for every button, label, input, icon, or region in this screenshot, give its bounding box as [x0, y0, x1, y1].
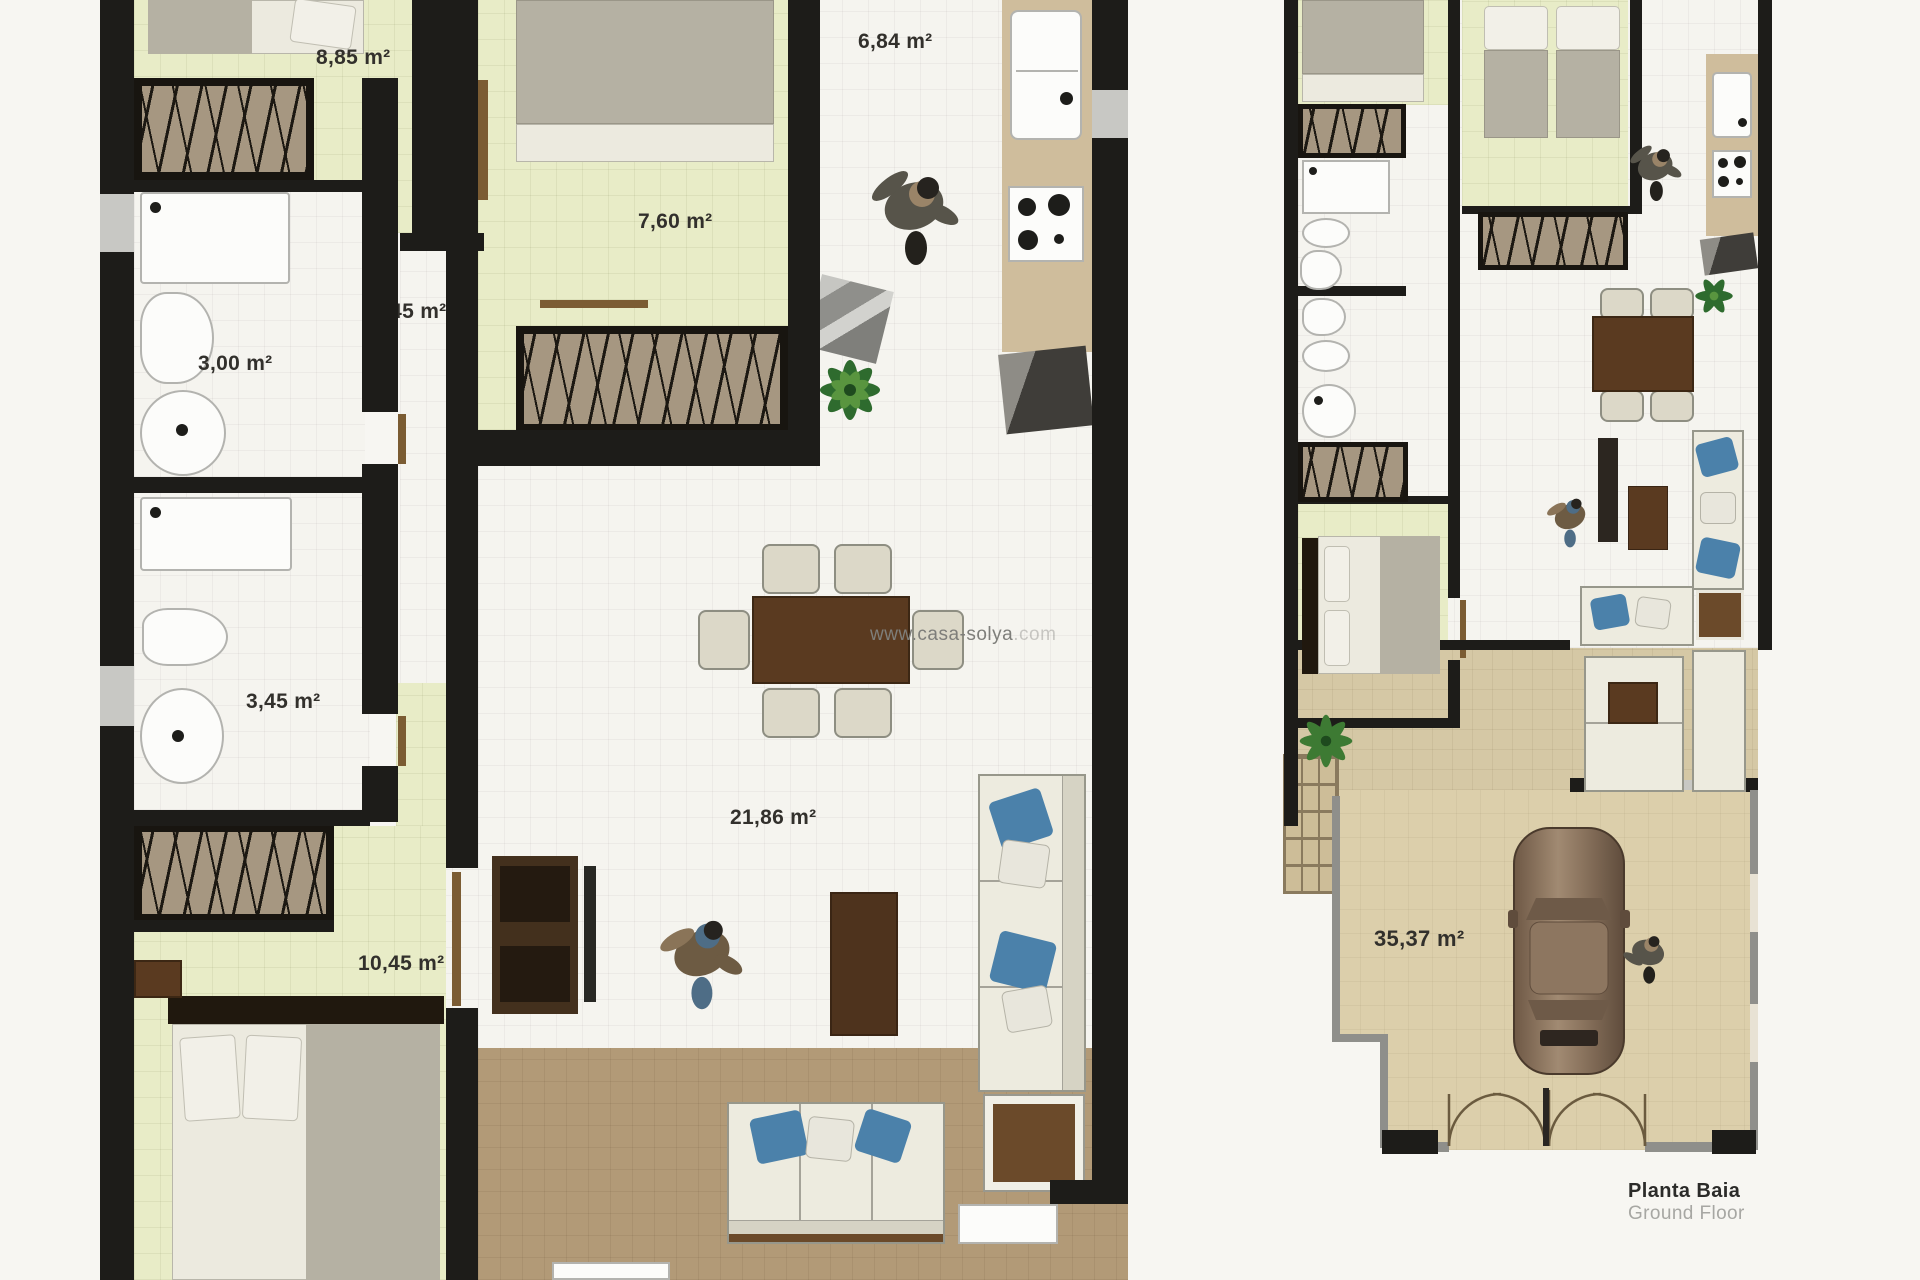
- drain-dot: [150, 202, 161, 213]
- armchair: [985, 1096, 1083, 1190]
- wardrobe-hangers: [1298, 104, 1406, 158]
- area-label-bathroom2: 3,45 m²: [246, 690, 320, 714]
- door-leaf: [398, 716, 406, 766]
- wall-living-left-upper: [446, 466, 478, 868]
- fridge-appliance: [998, 346, 1094, 435]
- tv-bench: [492, 856, 578, 1014]
- wall-outer-left: [100, 0, 134, 1280]
- door-leaf-bedroom1: [478, 80, 488, 200]
- drain-dot: [176, 424, 188, 436]
- wall-bedroom2-right: [788, 0, 820, 430]
- washbasin: [140, 390, 226, 476]
- watermark-visible: www.casa-solya: [870, 624, 1013, 645]
- stove-burners: [1008, 186, 1084, 262]
- dining-table: [1592, 316, 1694, 392]
- wardrobe-hangers: [516, 326, 788, 432]
- washbasin: [140, 688, 224, 784]
- garage-door-swings: [1447, 1086, 1647, 1148]
- garage-window: [1750, 874, 1758, 932]
- plan-caption: Planta Baia Ground Floor: [1628, 1180, 1745, 1225]
- floor-plan-sheet: 3,45 m²: [0, 0, 1920, 1280]
- drain-dot: [172, 730, 184, 742]
- person-figure: [1622, 132, 1686, 204]
- door-leaf-bedroom3: [452, 872, 461, 1006]
- washbasin: [1302, 340, 1350, 372]
- wall-divider-v: [1448, 0, 1460, 598]
- plant: [1298, 712, 1354, 770]
- shower-tray: [140, 192, 290, 284]
- terrace-step: [552, 1262, 670, 1280]
- washbasin: [1302, 218, 1350, 248]
- kitchen-sink: [1010, 10, 1082, 140]
- faucet-dot: [1060, 92, 1073, 105]
- sofa-horizontal: [727, 1102, 945, 1244]
- person-figure: [1620, 920, 1674, 988]
- garage-corner-block: [1712, 1130, 1756, 1154]
- wall-outer-right: [1758, 0, 1772, 650]
- wardrobe-hangers: [1478, 212, 1628, 270]
- fridge-appliance: [1700, 232, 1758, 275]
- wardrobe-hangers: [134, 824, 334, 922]
- sofa-vertical: [978, 774, 1086, 1092]
- shower-tray: [1302, 160, 1390, 214]
- toilet: [1300, 250, 1342, 290]
- sofa-horizontal: [1580, 586, 1694, 646]
- door-leaf: [398, 414, 406, 464]
- window: [100, 666, 134, 726]
- wall-bath-divider-v: [362, 464, 398, 714]
- wall-divider-v: [1448, 660, 1460, 722]
- wall-bedroom2-left: [446, 0, 478, 466]
- wall-h: [1284, 286, 1406, 296]
- wall-wardrobe2-bottom: [134, 920, 334, 932]
- wall-outer-right: [1092, 0, 1128, 1186]
- kitchen-sink: [1712, 72, 1752, 138]
- wall-cap: [1050, 1180, 1128, 1204]
- wall-outer-left: [1284, 0, 1298, 826]
- wall-bedroom1-right: [412, 0, 446, 236]
- wall-living-left-lower: [446, 1008, 478, 1280]
- wall-bath-divider-v: [362, 78, 398, 412]
- shower-round: [1302, 384, 1356, 438]
- area-label-bedroom2: 7,60 m²: [638, 210, 712, 234]
- garage-window: [1750, 1004, 1758, 1062]
- drain-dot: [150, 507, 161, 518]
- person-figure: [1540, 486, 1598, 550]
- car-top-view: [1506, 824, 1632, 1080]
- rug-coffee-table: [830, 892, 898, 1036]
- nightstand: [134, 960, 182, 998]
- garage-wall: [1750, 790, 1758, 1150]
- wardrobe-hangers: [1298, 442, 1408, 502]
- shower-tray: [140, 497, 292, 571]
- tv-screen: [1598, 438, 1618, 542]
- person-figure: [652, 898, 748, 1014]
- watermark: www.casa-solya.com: [870, 624, 1056, 646]
- window: [1092, 90, 1128, 138]
- toilet: [142, 608, 228, 666]
- area-label-bedroom3: 10,45 m²: [358, 952, 444, 976]
- garage-corner-block: [1382, 1130, 1438, 1154]
- garage-notch: [1283, 1038, 1383, 1280]
- sofa-vertical: [1692, 430, 1744, 590]
- terrace-lounger: [1692, 650, 1746, 792]
- caption-title: Planta Baia: [1628, 1180, 1745, 1203]
- toilet: [1302, 298, 1346, 336]
- wall-bedroom2-bottom: [446, 430, 820, 466]
- person-figure: [862, 148, 962, 270]
- shelf-line: [540, 300, 648, 308]
- stove-burners: [1712, 150, 1752, 198]
- plant: [1694, 276, 1734, 316]
- area-label-garage: 35,37 m²: [1374, 926, 1464, 952]
- window: [100, 194, 134, 252]
- wall-bath1-top: [134, 180, 365, 192]
- area-label-bedroom1: 8,85 m²: [316, 46, 390, 70]
- side-table: [1696, 590, 1744, 640]
- wall-bath2-bottom: [134, 810, 370, 826]
- area-label-kitchen: 6,84 m²: [858, 30, 932, 54]
- garage-wall: [1332, 796, 1340, 1042]
- wardrobe-hangers: [134, 78, 314, 180]
- area-label-bathroom1: 3,00 m²: [198, 352, 272, 376]
- caption-subtitle: Ground Floor: [1628, 1203, 1745, 1225]
- terrace-lounger: [1584, 656, 1684, 792]
- terrace-table: [1608, 682, 1658, 724]
- rug-coffee-table: [1628, 486, 1668, 550]
- watermark-faint: .com: [1013, 624, 1056, 645]
- area-label-living: 21,86 m²: [730, 806, 816, 830]
- tv-screen: [584, 866, 596, 1002]
- wall-bath-separator: [134, 477, 370, 493]
- plant: [818, 356, 882, 424]
- terrace-step: [958, 1204, 1058, 1244]
